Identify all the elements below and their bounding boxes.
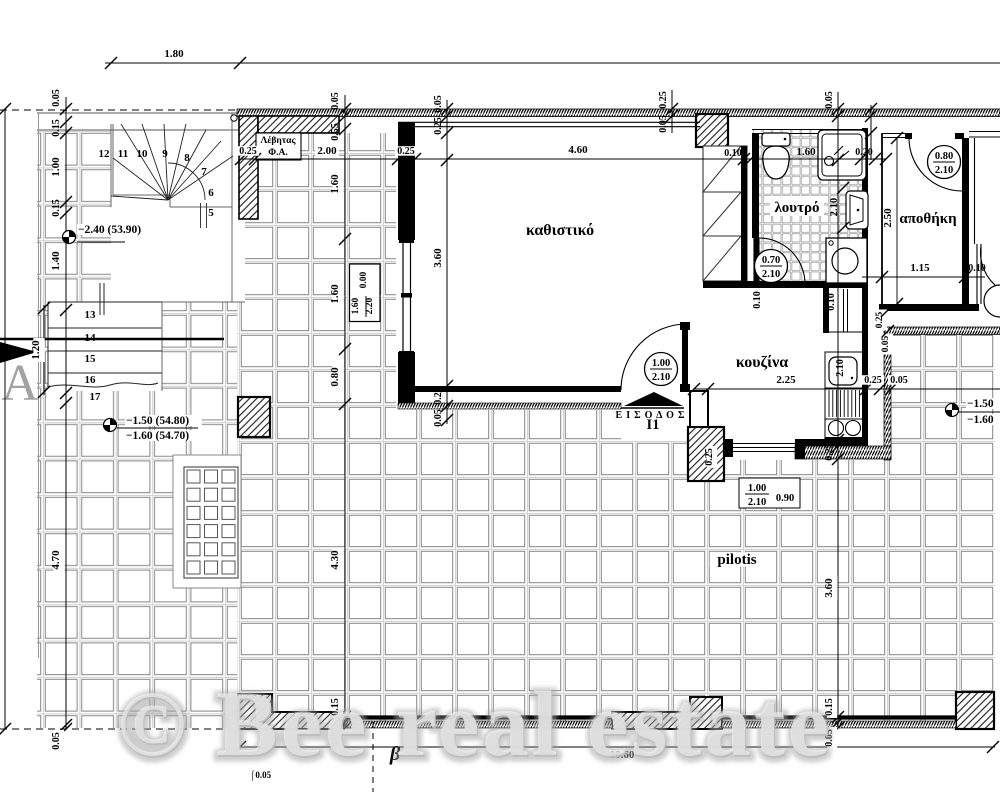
svg-text:11: 11 — [118, 148, 128, 160]
svg-text:0.25: 0.25 — [433, 387, 444, 405]
svg-text:−1.60 (54.70): −1.60 (54.70) — [126, 430, 189, 442]
svg-text:2.00: 2.00 — [317, 145, 337, 157]
svg-text:0.10: 0.10 — [968, 263, 986, 274]
svg-text:−1.50: −1.50 — [967, 398, 994, 410]
svg-text:0.25: 0.25 — [658, 91, 669, 109]
svg-text:9: 9 — [162, 148, 168, 160]
svg-text:καθιστικό: καθιστικό — [526, 222, 594, 239]
svg-text:1.00: 1.00 — [652, 358, 670, 369]
svg-text:10: 10 — [137, 148, 149, 160]
svg-text:15: 15 — [85, 353, 97, 365]
svg-text:4.30: 4.30 — [329, 550, 341, 570]
svg-text:Λέβητας: Λέβητας — [261, 135, 297, 146]
svg-text:0.80: 0.80 — [935, 151, 953, 162]
svg-text:0.05: 0.05 — [330, 92, 341, 110]
svg-text:0.90: 0.90 — [776, 493, 794, 504]
svg-text:0.25: 0.25 — [433, 117, 444, 135]
svg-text:1.00: 1.00 — [748, 483, 766, 494]
svg-text:6: 6 — [208, 187, 214, 199]
svg-text:0.25: 0.25 — [864, 375, 882, 386]
svg-text:1.15: 1.15 — [910, 262, 930, 274]
svg-text:2.10: 2.10 — [652, 372, 670, 383]
svg-text:1.40: 1.40 — [50, 251, 62, 271]
svg-text:0.25: 0.25 — [704, 448, 715, 466]
svg-text:0.05: 0.05 — [433, 95, 444, 113]
svg-text:αποθήκη: αποθήκη — [899, 211, 956, 227]
svg-text:17: 17 — [90, 391, 102, 403]
svg-text:0.55: 0.55 — [330, 123, 341, 141]
svg-text:12: 12 — [99, 148, 111, 160]
svg-text:−2.40 (53.90): −2.40 (53.90) — [78, 224, 141, 236]
svg-text:1.60: 1.60 — [329, 284, 341, 304]
svg-text:0.05: 0.05 — [51, 89, 62, 107]
svg-text:0.05: 0.05 — [890, 375, 908, 386]
svg-text:13: 13 — [85, 309, 97, 321]
svg-text:Φ.Α.: Φ.Α. — [268, 148, 288, 158]
svg-text:0.70: 0.70 — [762, 255, 780, 266]
svg-text:2.50: 2.50 — [882, 208, 894, 228]
svg-text:8: 8 — [184, 152, 190, 164]
svg-text:−1.50 (54.80): −1.50 (54.80) — [126, 415, 189, 427]
svg-text:0.15: 0.15 — [51, 119, 62, 137]
svg-text:A: A — [1, 355, 39, 412]
svg-text:2.25: 2.25 — [776, 374, 796, 386]
svg-text:1.00: 1.00 — [50, 157, 62, 177]
svg-text:pilotis: pilotis — [717, 552, 756, 568]
svg-text:16: 16 — [85, 374, 97, 386]
svg-text:−1.60: −1.60 — [967, 414, 994, 426]
svg-text:4.60: 4.60 — [568, 144, 588, 156]
svg-text:λουτρό: λουτρό — [774, 200, 819, 216]
svg-text:0.15: 0.15 — [51, 199, 62, 217]
svg-text:2.10: 2.10 — [835, 359, 846, 377]
svg-text:0.05: 0.05 — [658, 115, 669, 133]
svg-text:0.10: 0.10 — [724, 148, 742, 159]
svg-text:1.80: 1.80 — [164, 48, 184, 60]
svg-text:0.10: 0.10 — [752, 291, 763, 309]
svg-text:I1: I1 — [647, 417, 660, 433]
svg-text:1.60: 1.60 — [329, 174, 341, 194]
svg-text:0.05: 0.05 — [51, 732, 62, 750]
svg-text:1.60: 1.60 — [351, 297, 361, 314]
svg-text:1.20: 1.20 — [30, 340, 42, 360]
svg-text:7: 7 — [201, 166, 207, 178]
svg-text:5: 5 — [208, 207, 214, 219]
svg-text:0.05: 0.05 — [433, 409, 444, 427]
svg-text:0.80: 0.80 — [329, 367, 341, 387]
svg-text:2.10: 2.10 — [935, 165, 953, 176]
svg-text:0.25: 0.25 — [824, 443, 835, 461]
svg-text:3.60: 3.60 — [823, 578, 835, 598]
svg-text:1.60: 1.60 — [796, 146, 816, 158]
svg-text:2.10: 2.10 — [762, 269, 780, 280]
svg-text:0.00: 0.00 — [359, 271, 369, 288]
svg-text:κουζίνα: κουζίνα — [736, 354, 788, 371]
svg-text:0.10: 0.10 — [826, 293, 837, 311]
svg-text:0.05: 0.05 — [824, 91, 835, 109]
svg-text:© Bee real estate: © Bee real estate — [117, 673, 829, 776]
svg-text:0.25: 0.25 — [397, 146, 415, 157]
svg-text:0.25: 0.25 — [239, 146, 257, 157]
svg-text:0.05: 0.05 — [881, 335, 891, 352]
svg-text:2.20: 2.20 — [365, 297, 375, 314]
svg-text:3.60: 3.60 — [432, 248, 444, 268]
svg-text:0.20: 0.20 — [855, 147, 873, 158]
svg-text:4.70: 4.70 — [50, 550, 62, 570]
svg-text:2.10: 2.10 — [748, 497, 766, 508]
